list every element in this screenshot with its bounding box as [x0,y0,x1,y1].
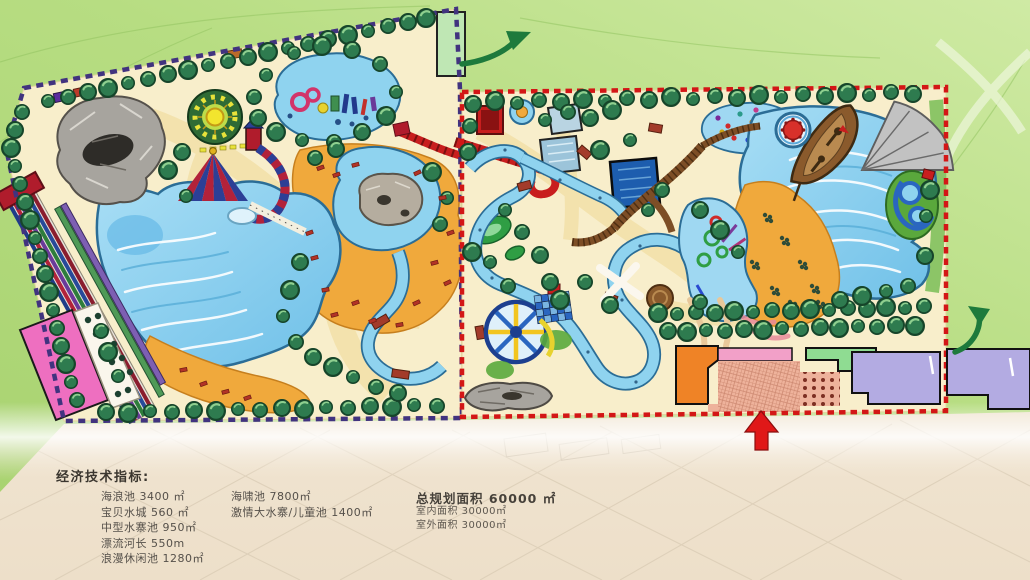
water-park-masterplan-page: 经济技术指标: 海浪池 3400 ㎡ 宝贝水城 560 ㎡ 中型水寨池 950㎡… [0,0,1030,580]
river-bridge [392,369,410,379]
rock-garden [465,383,552,411]
master-plan-map [0,0,1030,580]
spiral-slide-complex [886,169,938,239]
slide-tower [246,128,261,150]
spa-circle [776,113,810,147]
pink-strip-building [718,348,792,361]
